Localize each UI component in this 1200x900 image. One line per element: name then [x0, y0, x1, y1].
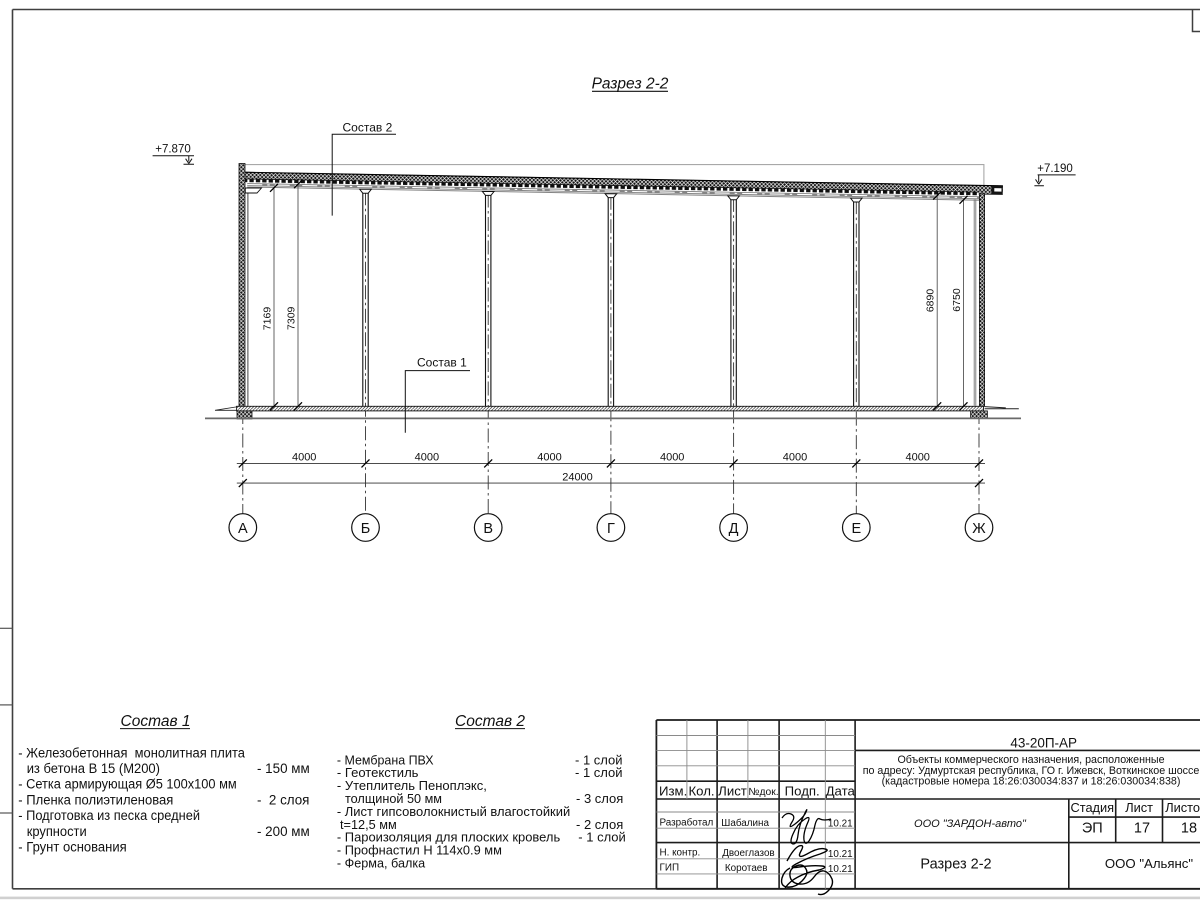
svg-text:ООО "Альянс": ООО "Альянс"	[1105, 856, 1193, 871]
svg-text:4000: 4000	[660, 452, 684, 464]
svg-text:Кол.: Кол.	[689, 783, 715, 798]
svg-text:ГИП: ГИП	[660, 863, 680, 874]
svg-text:ООО "ЗАРДОН-авто": ООО "ЗАРДОН-авто"	[914, 818, 1027, 830]
svg-text:10.21: 10.21	[828, 849, 853, 860]
svg-text:Изм.: Изм.	[659, 783, 687, 798]
svg-text:Двоеглазов: Двоеглазов	[722, 848, 775, 859]
svg-text:Подп.: Подп.	[785, 783, 820, 798]
svg-text:+7.190: +7.190	[1037, 163, 1073, 175]
svg-text:- 1 слой: - 1 слой	[578, 830, 626, 845]
svg-text:Состав 1: Состав 1	[121, 713, 191, 730]
svg-text:18: 18	[1181, 821, 1197, 837]
svg-text:Коротаев: Коротаев	[725, 863, 768, 874]
svg-text:Г: Г	[607, 521, 615, 537]
svg-text:4000: 4000	[783, 452, 807, 464]
svg-text:- 3 слоя: - 3 слоя	[576, 791, 623, 806]
svg-text:Е: Е	[851, 521, 861, 537]
svg-text:- 2 слоя: - 2 слоя	[257, 792, 309, 807]
svg-text:Ж: Ж	[972, 521, 986, 537]
svg-text:В: В	[483, 521, 493, 537]
svg-text:Состав 2: Состав 2	[455, 713, 525, 730]
svg-text:43-20П-АР: 43-20П-АР	[1010, 735, 1077, 750]
svg-text:ЭП: ЭП	[1082, 821, 1103, 837]
svg-text:Листов: Листов	[1165, 800, 1200, 815]
svg-text:- Сетка армирующая Ø5 100х100: - Сетка армирующая Ø5 100х100 мм	[18, 777, 236, 792]
svg-text:Состав 2: Состав 2	[343, 121, 393, 135]
svg-text:6750: 6750	[951, 288, 963, 312]
svg-text:из бетона В 15 (М200): из бетона В 15 (М200)	[27, 761, 160, 776]
svg-text:Разрез 2-2: Разрез 2-2	[592, 76, 669, 93]
svg-text:№док.: №док.	[748, 787, 778, 798]
svg-text:4000: 4000	[415, 452, 439, 464]
svg-text:Лист: Лист	[1125, 800, 1153, 815]
svg-text:(кадастровые номера 18:26:0300: (кадастровые номера 18:26:030034:837 и 1…	[882, 775, 1181, 787]
svg-text:24000: 24000	[562, 471, 593, 483]
svg-text:7309: 7309	[286, 306, 298, 330]
svg-text:Дата: Дата	[826, 783, 856, 798]
svg-text:17: 17	[1134, 821, 1150, 837]
svg-text:- Железобетонная монолитная п: - Железобетонная монолитная плита	[18, 745, 245, 760]
svg-text:Стадия: Стадия	[1070, 800, 1114, 815]
svg-text:А: А	[238, 521, 248, 537]
svg-text:Д: Д	[729, 521, 739, 537]
svg-text:- Ферма, балка: - Ферма, балка	[337, 856, 426, 871]
svg-text:- 200 мм: - 200 мм	[257, 824, 310, 839]
svg-text:4000: 4000	[292, 452, 316, 464]
svg-text:Состав 1: Состав 1	[417, 356, 467, 370]
svg-text:10.21: 10.21	[828, 864, 853, 875]
svg-text:Б: Б	[361, 521, 371, 537]
svg-text:крупности: крупности	[27, 824, 87, 839]
svg-text:Лист: Лист	[718, 783, 747, 798]
svg-text:+7.870: +7.870	[155, 144, 191, 156]
svg-text:4000: 4000	[905, 452, 929, 464]
svg-text:- Грунт основания: - Грунт основания	[18, 840, 126, 855]
svg-text:- Пленка полиэтиленовая: - Пленка полиэтиленовая	[18, 792, 173, 807]
svg-text:- Подготовка из песка средней: - Подготовка из песка средней	[18, 808, 200, 823]
svg-text:- 1 слой: - 1 слой	[575, 765, 623, 780]
svg-text:Н. контр.: Н. контр.	[660, 847, 701, 858]
svg-text:Разрез 2-2: Разрез 2-2	[920, 857, 991, 873]
svg-text:Шабалина: Шабалина	[721, 818, 769, 829]
svg-text:Разработал: Разработал	[660, 817, 714, 828]
svg-text:7169: 7169	[262, 307, 274, 331]
svg-text:10.21: 10.21	[828, 819, 853, 830]
svg-text:6890: 6890	[925, 289, 937, 313]
svg-text:4000: 4000	[537, 452, 561, 464]
svg-text:- 150 мм: - 150 мм	[257, 761, 310, 776]
